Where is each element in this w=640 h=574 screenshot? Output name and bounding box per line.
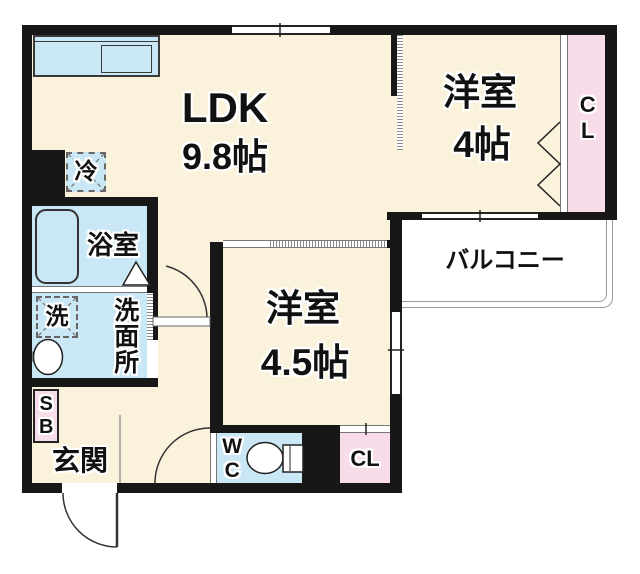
kitchen-counter [33, 35, 160, 77]
sliding-door-hatch [270, 241, 387, 247]
ldk-name-label: LDK [140, 85, 310, 131]
wc-door-opening [210, 433, 217, 483]
balcony-label: バルコニー [405, 248, 605, 274]
window-ldk-top [232, 25, 330, 35]
washroom-sliding-door [147, 293, 153, 340]
sliding-door-ldk-bedroom-right [397, 35, 403, 150]
closet-right-label: CL [575, 94, 599, 142]
window-bedroom-center-right [390, 312, 402, 394]
entrance-label: 玄関 [40, 446, 120, 476]
kitchen-counter-edge [35, 37, 158, 42]
wall-left [22, 25, 32, 493]
bedroom-center-size-label: 4.5帖 [223, 342, 387, 384]
wall-bathroom-top [22, 197, 158, 206]
wall-right-upper [605, 25, 617, 220]
shoe-box-label: SB [35, 392, 57, 440]
bedroom-center-name-label: 洋室 [223, 288, 383, 330]
wall-left-pillar [22, 150, 65, 200]
bathroom-label: 浴室 [60, 231, 166, 259]
entrance-door-opening [62, 483, 117, 493]
wall-wc-top [210, 425, 340, 433]
washroom-label: 洗面所 [110, 294, 138, 378]
floor-plan: LDK 9.8帖 洋室 4帖 洋室 4.5帖 浴室 洗面所 洗 冷 玄関 SB … [0, 0, 640, 574]
wall-washroom-bottom [22, 378, 158, 387]
ldk-size-label: 9.8帖 [140, 136, 310, 178]
wall-wc-mid [302, 433, 340, 483]
refrigerator-label: 冷 [66, 152, 106, 192]
window-bedroom-right-balcony [422, 212, 538, 220]
closet-right-opening [560, 35, 568, 212]
bath-washroom-divider [32, 286, 147, 293]
closet-lower-opening [340, 425, 390, 433]
bedroom-right-size-label: 4帖 [404, 124, 560, 166]
closet-lower-label: CL [342, 447, 388, 471]
washer-label: 洗 [36, 296, 78, 338]
wall-bedroom-center-left [210, 242, 223, 430]
wall-bedroom-center-top-end [387, 240, 402, 248]
washroom-door-opening [147, 340, 158, 378]
kitchen-sink [101, 45, 152, 73]
entrance-door-arc [63, 493, 117, 547]
wc-label: WC [219, 436, 245, 482]
sliding-door-bedroom-center-top [223, 240, 387, 248]
bedroom-right-name-label: 洋室 [404, 72, 556, 114]
